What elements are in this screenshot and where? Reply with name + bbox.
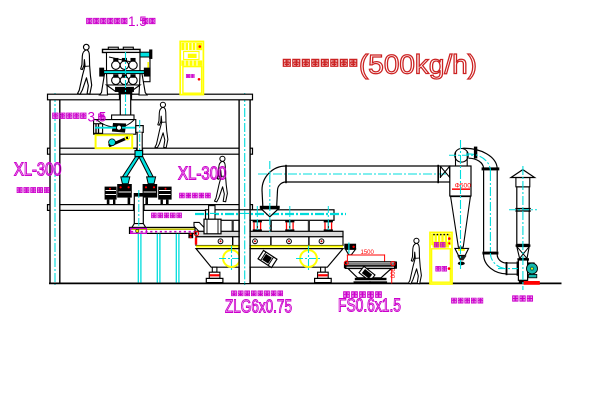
svg-text:(500kg/h): (500kg/h) bbox=[359, 50, 477, 80]
svg-text:FS0.6x1.5: FS0.6x1.5 bbox=[338, 295, 401, 316]
svg-text:XL-300: XL-300 bbox=[178, 164, 227, 184]
svg-text:XL-300: XL-300 bbox=[14, 160, 62, 180]
svg-text:ZLG6x0.75: ZLG6x0.75 bbox=[225, 296, 292, 317]
svg-text:1.5: 1.5 bbox=[128, 14, 147, 29]
svg-text:1500: 1500 bbox=[361, 250, 375, 256]
